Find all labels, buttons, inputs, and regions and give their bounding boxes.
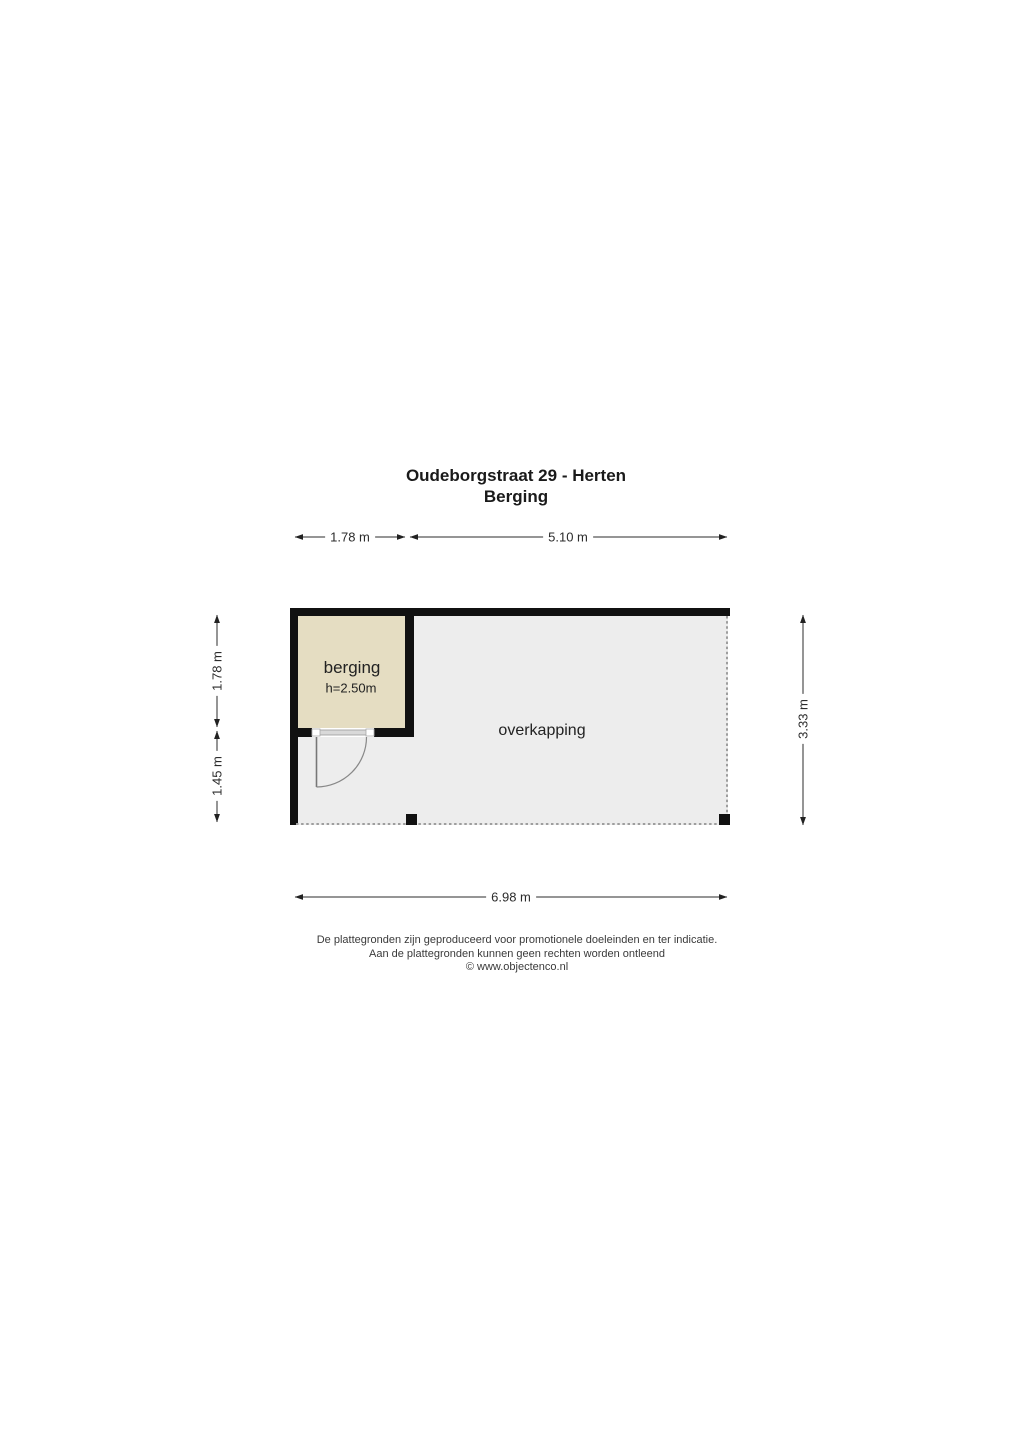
- footer-copyright: © www.objectenco.nl: [317, 961, 718, 975]
- dim-label-bottom: 6.98 m: [486, 890, 536, 905]
- berging-height-note: h=2.50m: [326, 681, 377, 696]
- post-bottom-middle: [406, 814, 417, 825]
- post-bottom-right: [719, 814, 730, 825]
- top-wall: [290, 608, 730, 616]
- floorplan-page: Oudeborgstraat 29 - Herten Berging: [0, 0, 1018, 1440]
- dim-label-right: 3.33 m: [796, 694, 811, 744]
- overkapping-room-label: overkapping: [498, 722, 585, 740]
- dim-label-top-overkapping: 5.10 m: [543, 530, 593, 545]
- dim-label-left-berging: 1.78 m: [210, 646, 225, 696]
- footer-line-1: De plattegronden zijn geproduceerd voor …: [317, 934, 718, 948]
- door-threshold: [312, 730, 374, 735]
- footer-disclaimer: De plattegronden zijn geproduceerd voor …: [317, 934, 718, 975]
- footer-line-2: Aan de plattegronden kunnen geen rechten…: [317, 948, 718, 962]
- left-wall: [290, 608, 298, 825]
- dim-label-top-berging: 1.78 m: [325, 530, 375, 545]
- berging-room-label: berging: [324, 658, 381, 678]
- door-jamb-left: [312, 729, 320, 736]
- berging-right-wall: [405, 608, 414, 737]
- floorplan-canvas: [0, 0, 1018, 1440]
- door-jamb-right: [366, 729, 374, 736]
- dim-label-left-lower: 1.45 m: [210, 751, 225, 801]
